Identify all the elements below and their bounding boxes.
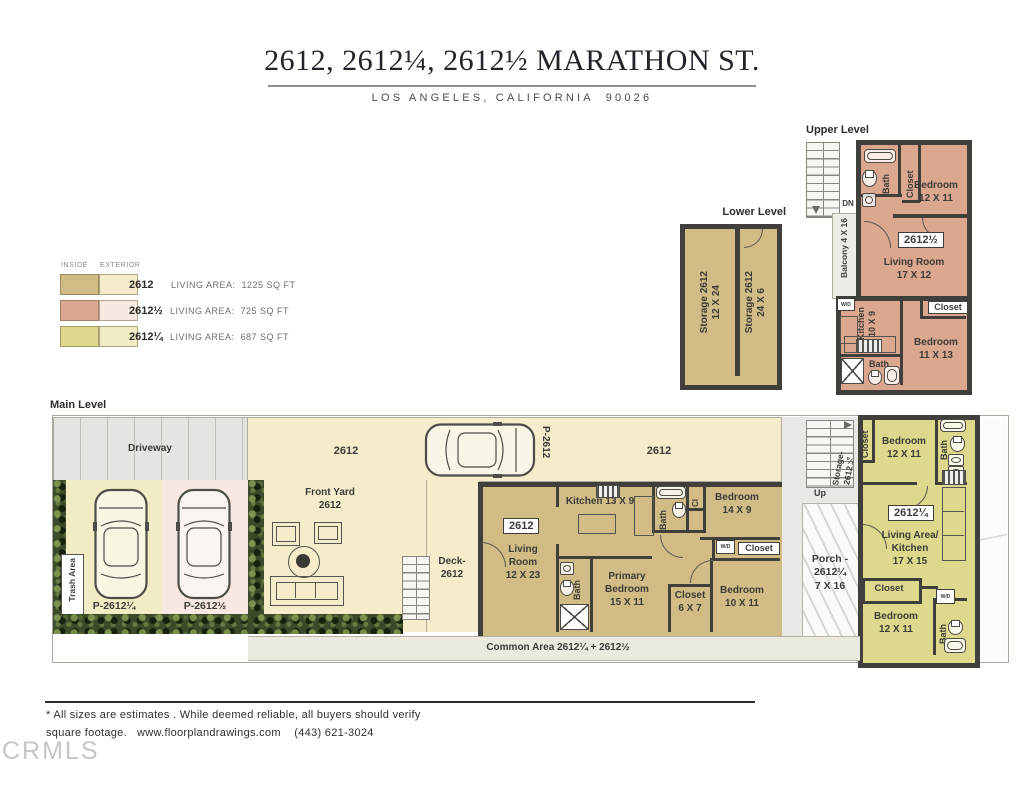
stove-icon — [596, 485, 620, 498]
lot-label-b: 2612 — [638, 444, 680, 458]
house-closet1-label: Closet — [738, 542, 780, 555]
page-subtitle: LOS ANGELES, CALIFORNIA 90026 — [0, 92, 1024, 104]
lower-level-title: Lower Level — [716, 206, 786, 218]
toilet-icon — [868, 370, 882, 385]
quarter-living-label: Living Area/ Kitchen 17 X 15 — [866, 530, 954, 568]
car-icon — [93, 486, 149, 602]
firepit-icon — [296, 554, 310, 568]
stairs-down-arrow-icon — [812, 206, 820, 214]
sofa-divider — [295, 582, 296, 598]
title-divider — [268, 85, 756, 87]
quarter-closet-mid: Closet — [862, 578, 922, 604]
stove-icon — [856, 339, 882, 353]
house-cl-label: Cl — [691, 489, 700, 507]
wall — [838, 354, 900, 357]
storage1-label: Storage 2612 12 X 24 — [688, 240, 732, 364]
counter-divider — [942, 511, 964, 512]
swatch-half-inside — [60, 300, 99, 321]
wall — [556, 556, 593, 559]
house-primary-label: Primary Bedroom 15 X 11 — [590, 571, 664, 609]
swatch-quarter-inside — [60, 326, 99, 347]
upper-dn-label: DN — [838, 199, 858, 209]
kitchen-island-icon — [578, 514, 616, 534]
shower-icon — [841, 358, 864, 384]
floor-plan-page: 2612, 2612¼, 2612½ MARATHON ST. LOS ANGE… — [0, 0, 1024, 791]
quarter-bedroom-top-label: Bedroom 12 X 11 — [871, 436, 937, 462]
legend-area-half: LIVING AREA: 725 SQ FT — [170, 306, 289, 316]
upper-living-label: Living Room 17 X 12 — [874, 257, 954, 283]
car-icon — [422, 422, 538, 478]
common-area-label: Common Area 2612¼ + 2612½ — [358, 642, 758, 655]
crmls-logo: CRMLS — [2, 737, 100, 766]
counter-icon — [634, 496, 654, 536]
hedge — [53, 614, 403, 634]
bathtub-icon — [944, 638, 966, 653]
front-yard-num: 2612 — [294, 500, 366, 513]
wall — [592, 556, 652, 559]
house-bedroom2-label: Bedroom 10 X 11 — [708, 585, 776, 611]
disclaimer-line1: * All sizes are estimates . While deemed… — [46, 709, 421, 721]
upper-unit-badge: 2612½ — [898, 232, 944, 248]
legend-area-2612: LIVING AREA: 1225 SQ FT — [171, 280, 296, 290]
bathtub-icon — [884, 366, 900, 385]
chair-icon — [276, 526, 296, 542]
sofa-divider — [315, 582, 316, 598]
bathtub-icon — [864, 149, 896, 163]
upper-level-title: Upper Level — [806, 124, 869, 136]
common-area: Common Area 2612¼ + 2612½ — [248, 636, 860, 661]
wall — [920, 316, 966, 319]
quarter-closet-mid-label: Closet — [865, 583, 913, 595]
hedge — [248, 480, 264, 616]
wall — [900, 300, 903, 385]
toilet-icon — [862, 170, 877, 187]
shower-icon — [560, 604, 589, 630]
main-level-title: Main Level — [50, 399, 106, 411]
house-bath2-label: Bath — [572, 566, 582, 600]
front-yard-label: Front Yard — [294, 487, 366, 500]
legend-unit-half: 2612½ — [129, 305, 163, 317]
house-bedroom1-label: Bedroom 14 X 9 — [703, 492, 771, 518]
legend-area-quarter: LIVING AREA: 687 SQ FT — [170, 332, 289, 342]
quarter-badge: 2612¼ — [888, 505, 934, 521]
balcony-label: Balcony 4 X 16 — [839, 218, 849, 278]
stove-icon — [942, 470, 966, 485]
footer-divider — [45, 701, 755, 703]
p-2612-label: P-2612 — [540, 426, 551, 458]
legend-unit-2612: 2612 — [129, 279, 153, 291]
page-title: 2612, 2612¼, 2612½ MARATHON ST. — [0, 44, 1024, 78]
wall — [668, 584, 713, 587]
chair-icon — [318, 526, 338, 540]
quarter-bedroom-bot-label: Bedroom 12 X 11 — [860, 611, 932, 637]
toilet-icon — [672, 502, 686, 518]
counter-divider — [942, 535, 964, 536]
upper-closet-right-label: Closet — [928, 301, 968, 314]
wall — [735, 228, 740, 376]
sofa-icon — [276, 582, 338, 600]
house-closet2-label: Closet 6 X 7 — [668, 590, 712, 616]
sink-icon — [948, 454, 964, 466]
toilet-icon — [950, 436, 965, 452]
washer-dryer-icon: W/D — [936, 589, 955, 604]
car-icon — [176, 486, 232, 602]
upper-bedroom-bottom-label: Bedroom 11 X 13 — [904, 337, 968, 363]
parking-half-label: P-2612½ — [169, 600, 241, 613]
house-living-label: Living Room 12 X 23 — [491, 544, 555, 582]
bathtub-icon — [940, 419, 966, 432]
quarter-closet-top-label: Closet — [860, 420, 870, 458]
washer-dryer-icon: W/D — [837, 298, 855, 311]
upper-bath-top-label: Bath — [881, 158, 891, 194]
wall — [898, 145, 901, 197]
legend-col-exterior: EXTERIOR — [100, 262, 141, 269]
legend-col-inside: INSIDE — [61, 262, 88, 269]
lot-label-a: 2612 — [325, 444, 367, 458]
wall — [920, 300, 923, 318]
upper-bedroom-top-label: Bedroom 12 X 11 — [904, 180, 968, 206]
washer-dryer-icon: W/D — [716, 540, 735, 554]
wall — [712, 558, 780, 561]
sink-icon — [862, 193, 876, 207]
counter-icon — [942, 487, 966, 561]
wall — [861, 482, 917, 485]
trash-area-label: Trash Area — [67, 558, 77, 602]
deck-label: Deck- 2612 — [424, 556, 480, 582]
driveway-label: Driveway — [110, 443, 190, 456]
wall — [652, 530, 706, 533]
house-bath1-label: Bath — [658, 496, 668, 530]
toilet-icon — [948, 620, 963, 635]
wall — [933, 598, 936, 655]
storage2-label: Storage 2612 24 X 6 — [742, 240, 768, 364]
parking-quarter-label: P-2612¼ — [78, 600, 150, 613]
swatch-2612-inside — [60, 274, 99, 295]
house-badge: 2612 — [503, 518, 539, 534]
porch-label: Porch - 2612¼ 7 X 16 — [800, 553, 860, 593]
stairs-up-arrow-icon — [844, 421, 852, 429]
legend-unit-quarter: 2612¼ — [129, 331, 163, 343]
